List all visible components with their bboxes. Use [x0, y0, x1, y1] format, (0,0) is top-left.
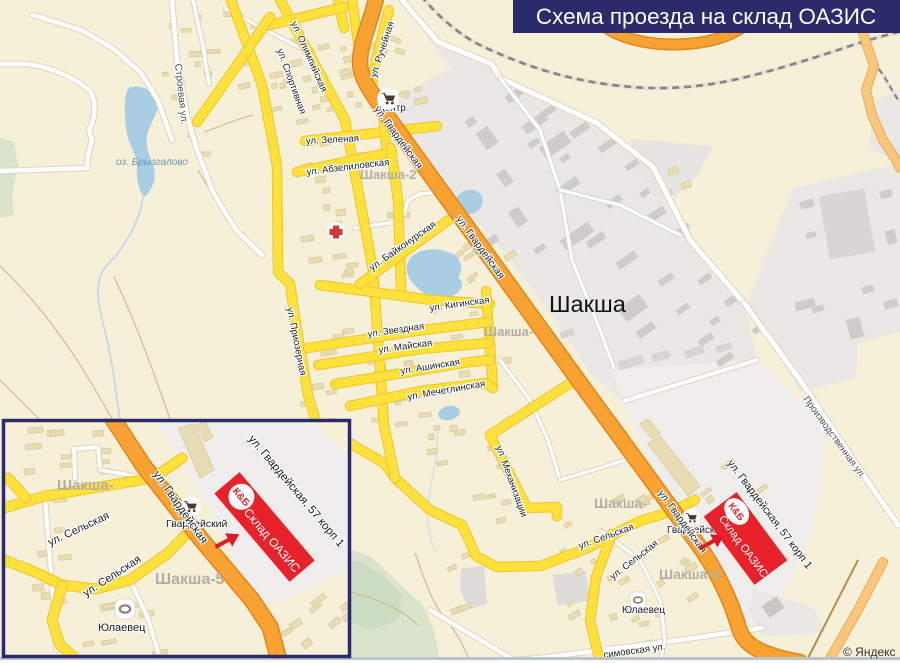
svg-text:Схема проезда на склад ОАЗИС: Схема проезда на склад ОАЗИС	[536, 4, 876, 29]
svg-text:Юлаевец: Юлаевец	[622, 605, 665, 616]
svg-text:оз. Брызгалово: оз. Брызгалово	[116, 157, 188, 168]
svg-text:Шакша: Шакша	[549, 291, 627, 317]
svg-text:Шакша-2: Шакша-2	[360, 167, 416, 182]
svg-text:© Яндекс: © Яндекс	[843, 645, 896, 659]
svg-text:Шакша-5: Шакша-5	[659, 566, 720, 582]
svg-text:Шакша-: Шакша-	[57, 477, 114, 494]
svg-text:Шакша-: Шакша-	[484, 324, 533, 339]
svg-text:Юлаевец: Юлаевец	[98, 622, 146, 634]
svg-text:Шакша-5: Шакша-5	[155, 571, 225, 588]
svg-text:Шакша-: Шакша-	[594, 495, 647, 511]
